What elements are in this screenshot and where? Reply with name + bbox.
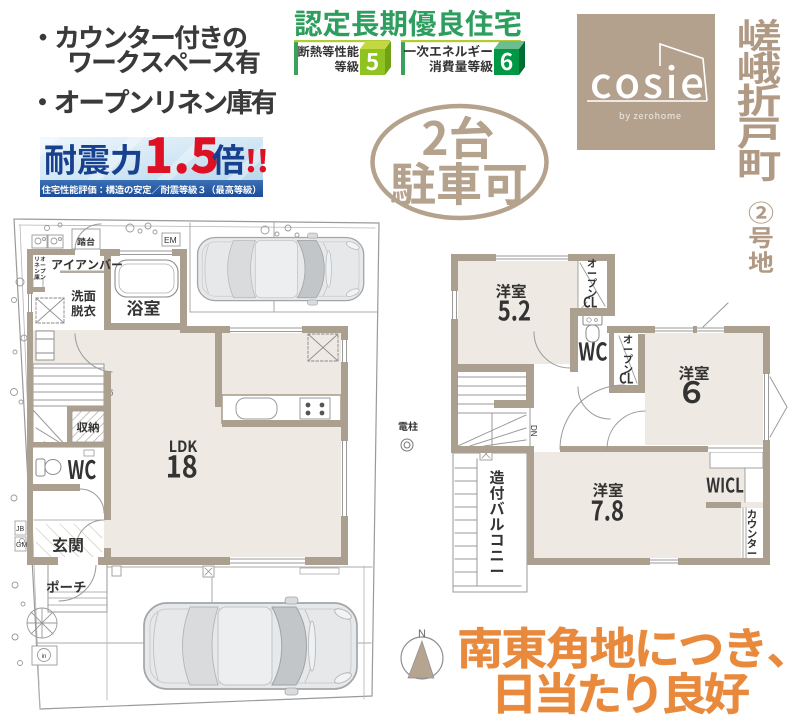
svg-text:DN: DN bbox=[529, 425, 538, 437]
svg-text:EM: EM bbox=[164, 235, 177, 245]
svg-text:JB: JB bbox=[16, 526, 25, 533]
svg-text:in: in bbox=[42, 654, 47, 660]
svg-text:N: N bbox=[418, 628, 426, 640]
svg-text:GM: GM bbox=[16, 542, 27, 549]
